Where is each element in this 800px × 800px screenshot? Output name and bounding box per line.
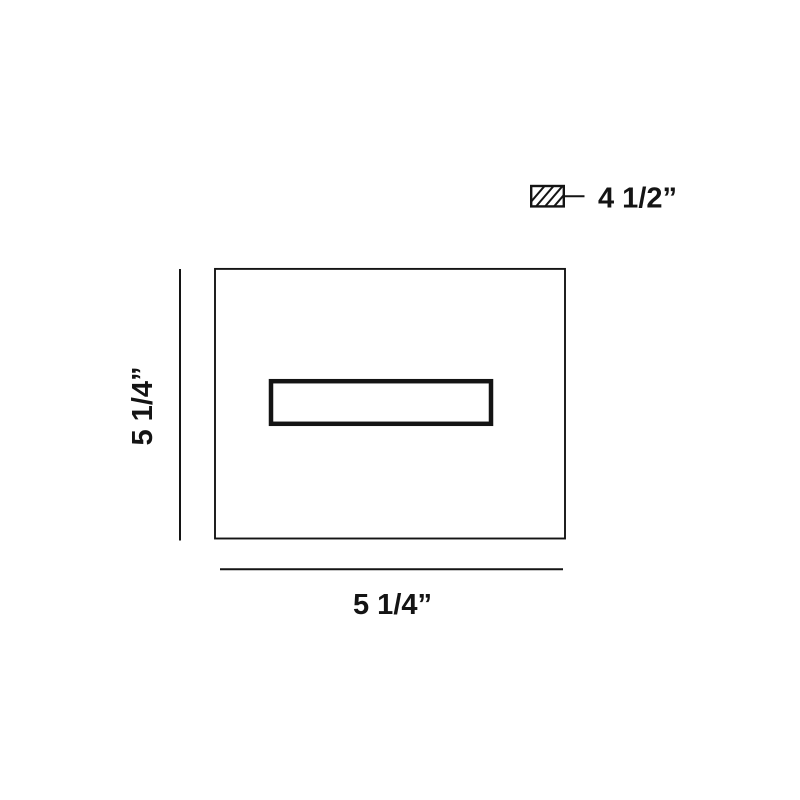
svg-text:5 1/4”: 5 1/4” [127,367,159,446]
svg-text:5 1/4”: 5 1/4” [353,589,432,621]
svg-text:4 1/2”: 4 1/2” [598,183,677,215]
